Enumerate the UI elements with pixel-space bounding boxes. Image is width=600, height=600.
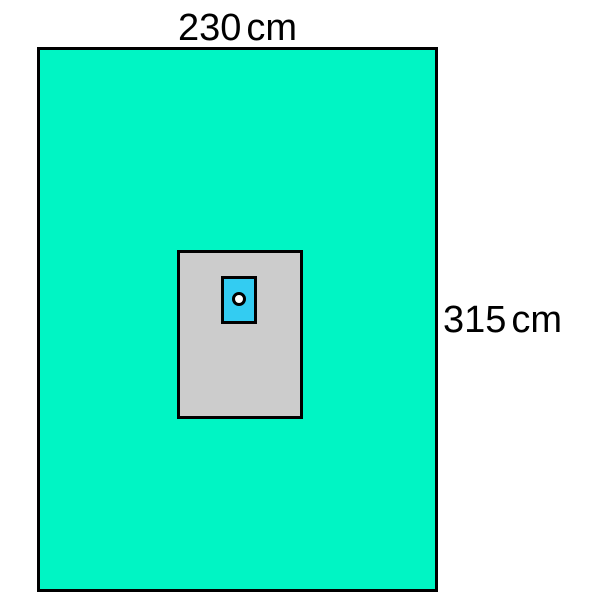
height-dimension-unit: cm [511,301,562,339]
height-dimension-label: 315cm [443,301,562,339]
width-dimension-unit: cm [246,9,297,47]
diagram-canvas: 230cm 315cm [0,0,600,600]
width-dimension-label: 230cm [37,9,438,47]
width-dimension-value: 230 [178,7,241,49]
fenestration-hole-circle [232,292,246,306]
height-dimension-value: 315 [443,299,506,341]
